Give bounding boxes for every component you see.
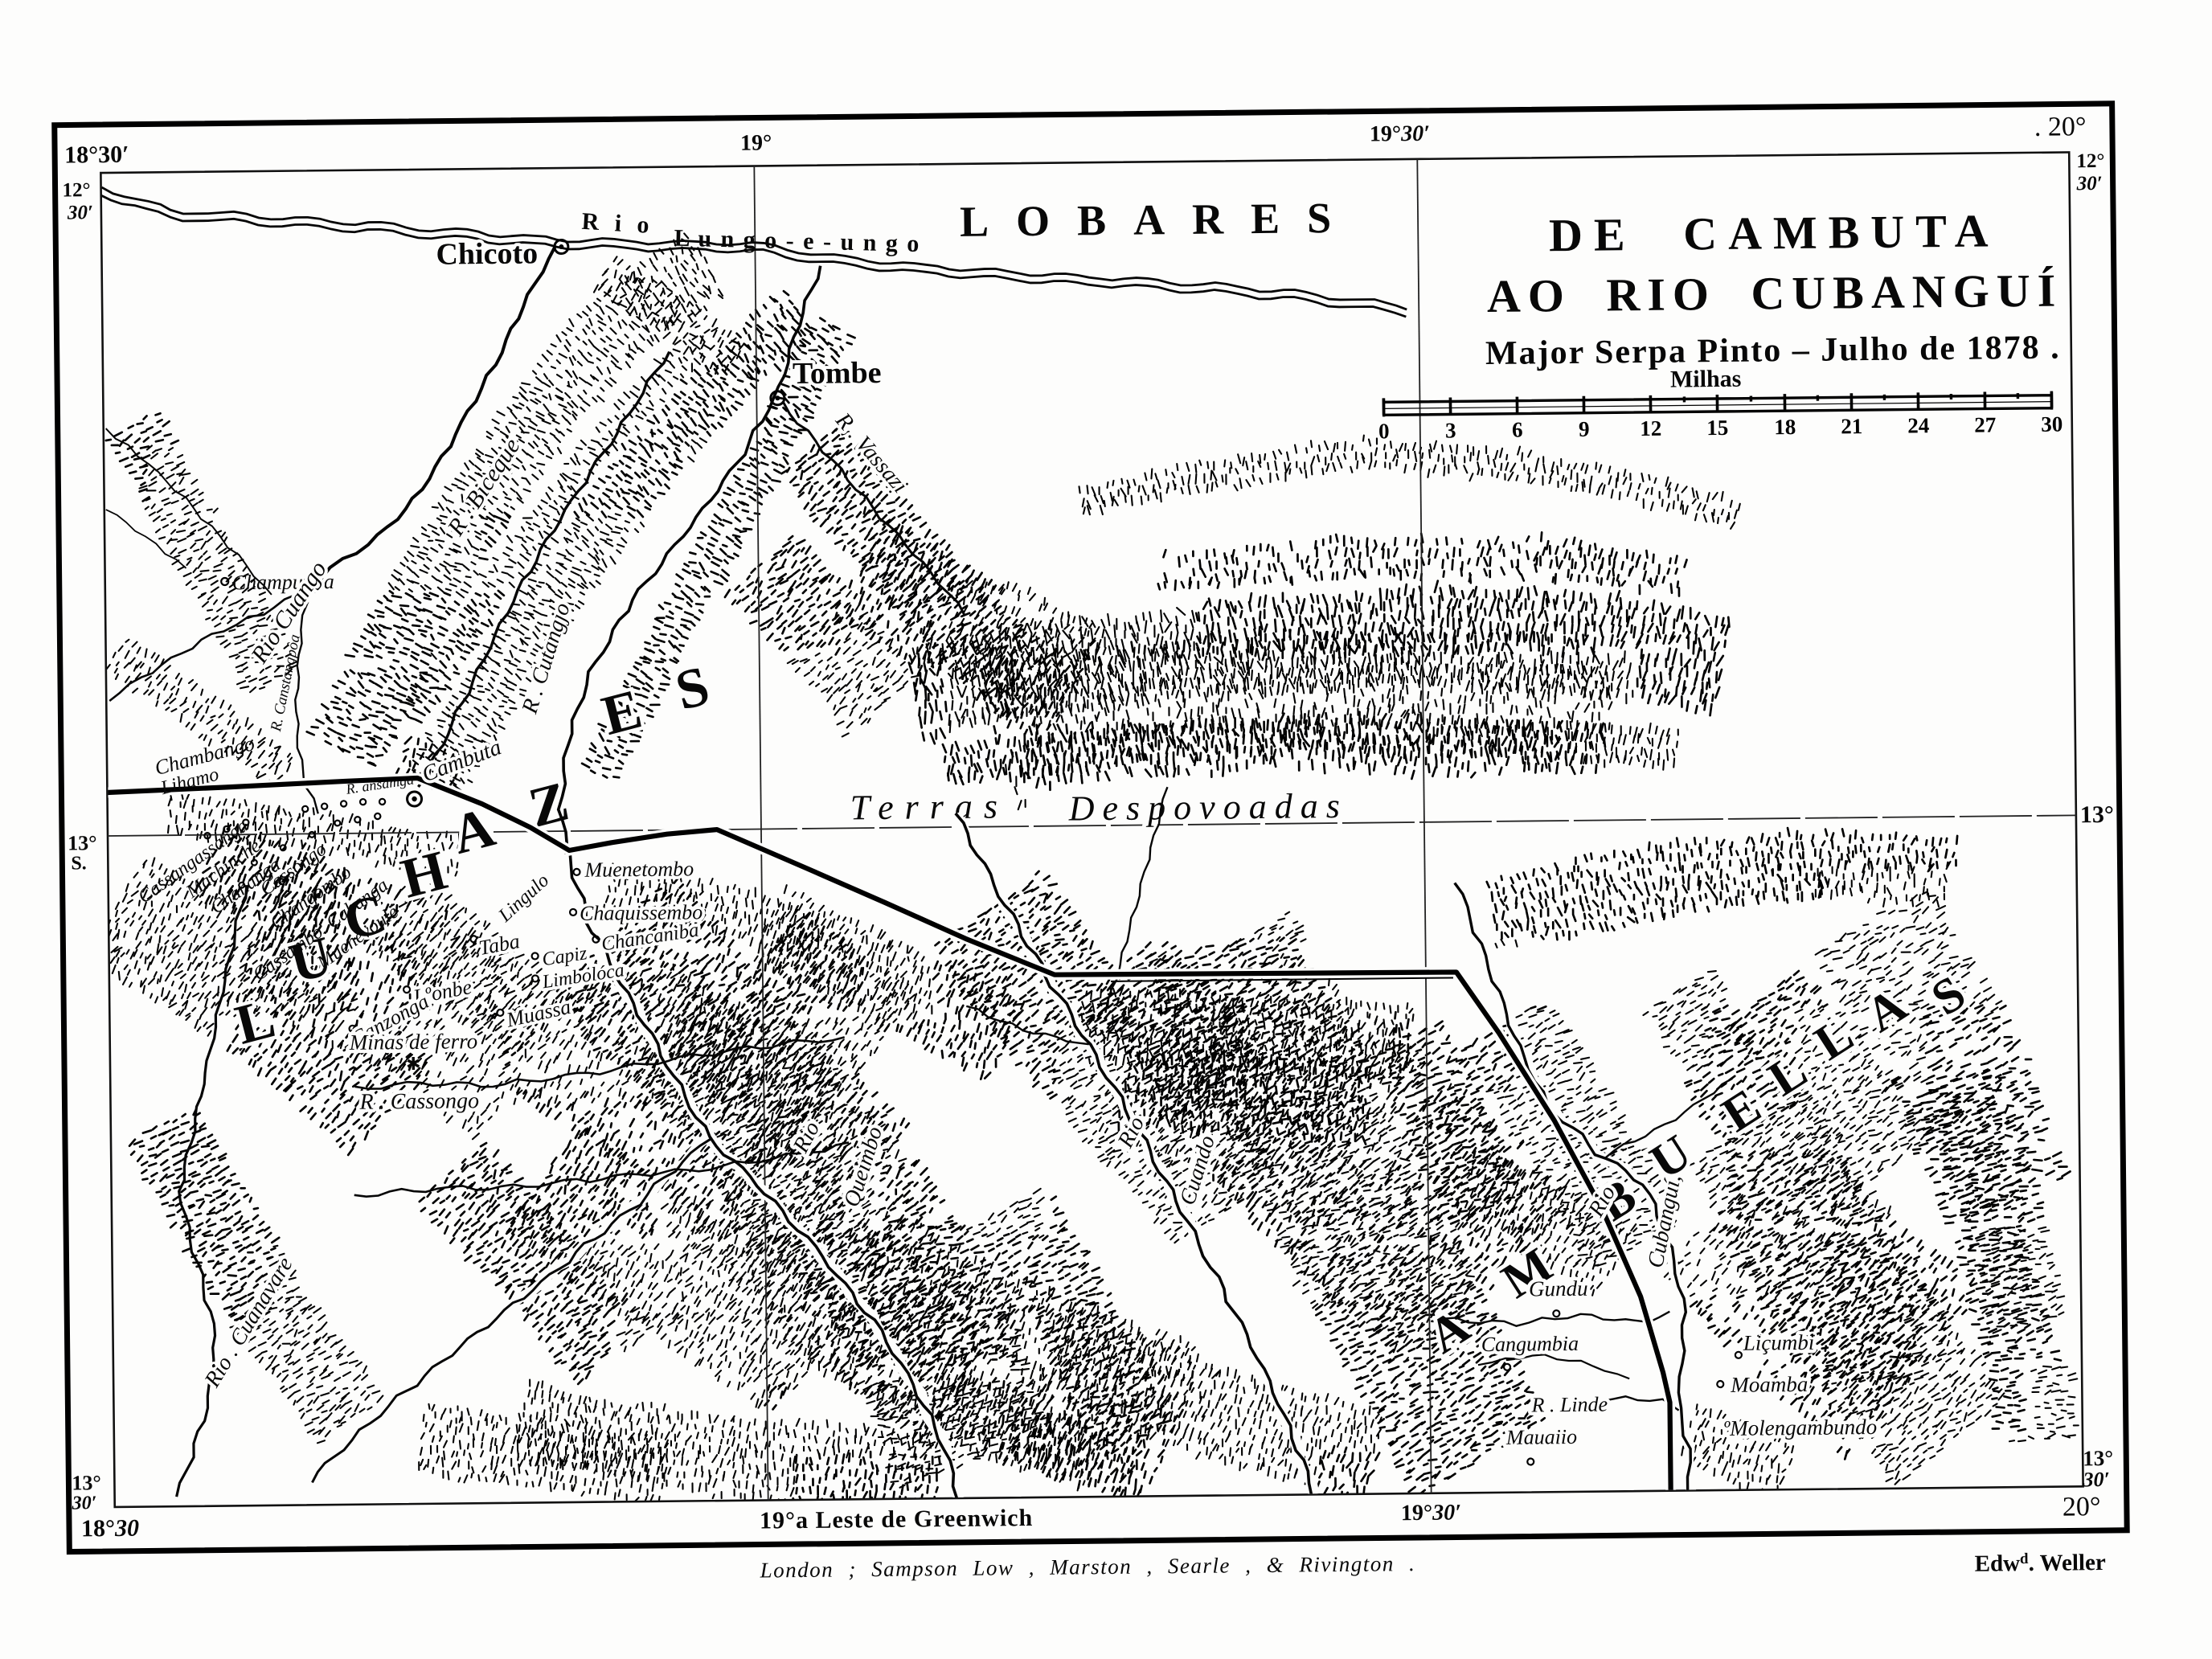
svg-text:Milhas: Milhas: [1670, 366, 1742, 393]
svg-text:R . Linde: R . Linde: [1530, 1393, 1608, 1417]
svg-text:19°30′: 19°30′: [1401, 1500, 1461, 1526]
svg-text:30′: 30′: [67, 202, 93, 223]
svg-text:Major Serpa Pinto – Julho de 1: Major Serpa Pinto – Julho de 1878 .: [1485, 330, 2061, 372]
svg-text:15: 15: [1706, 416, 1728, 440]
svg-text:Liçumbi: Liçumbi: [1743, 1330, 1815, 1355]
svg-text:Minas de ferro: Minas de ferro: [349, 1029, 478, 1055]
svg-text:✱: ✱: [406, 1054, 421, 1074]
svg-text:Cangumbia: Cangumbia: [1481, 1332, 1579, 1356]
svg-text:Gundu: Gundu: [1529, 1276, 1588, 1301]
svg-text:18°30′: 18°30′: [64, 141, 129, 169]
svg-text:12°: 12°: [2076, 150, 2104, 172]
svg-text:27: 27: [1974, 412, 1996, 436]
svg-text:R i o: R i o: [581, 208, 655, 239]
svg-text:. 20°: . 20°: [2034, 112, 2087, 142]
svg-text:18°30: 18°30: [81, 1515, 139, 1542]
svg-text:19°a Leste de Greenwich: 19°a Leste de Greenwich: [760, 1505, 1034, 1534]
svg-text:0: 0: [1378, 419, 1390, 443]
svg-text:13°: 13°: [68, 831, 97, 854]
svg-text:Despovoadas: Despovoadas: [1067, 786, 1348, 829]
svg-text:Edwd. Weller: Edwd. Weller: [1974, 1550, 2106, 1577]
svg-text:18: 18: [1774, 415, 1796, 439]
svg-text:DE CAMBUTA: DE CAMBUTA: [1549, 204, 2000, 261]
svg-text:Tombe: Tombe: [793, 356, 882, 391]
svg-text:Chicoto: Chicoto: [436, 236, 538, 271]
svg-text:R . Cassongo: R . Cassongo: [358, 1088, 479, 1115]
svg-text:24: 24: [1907, 413, 1929, 437]
svg-text:9: 9: [1579, 417, 1590, 441]
svg-text:12: 12: [1640, 416, 1661, 440]
svg-text:20°: 20°: [2062, 1492, 2101, 1522]
svg-text:LOBARES: LOBARES: [960, 194, 1359, 246]
svg-text:30′: 30′: [72, 1493, 97, 1514]
svg-text:21: 21: [1841, 414, 1862, 438]
svg-text:19°: 19°: [740, 130, 772, 155]
svg-text:AO RIO CUBANGUÍ: AO RIO CUBANGUÍ: [1487, 264, 2063, 322]
svg-text:S.: S.: [71, 853, 87, 874]
svg-text:13°: 13°: [2083, 1446, 2113, 1470]
svg-text:Mauaiio: Mauaiio: [1505, 1425, 1577, 1449]
svg-text:6: 6: [1512, 418, 1523, 442]
svg-text:Muenetombo: Muenetombo: [584, 857, 694, 881]
svg-text:19°30′: 19°30′: [1370, 121, 1430, 147]
svg-text:30′: 30′: [2076, 173, 2103, 195]
svg-text:30′: 30′: [2082, 1468, 2110, 1491]
svg-text:3: 3: [1445, 418, 1456, 442]
svg-text:Terras: Terras: [850, 786, 1009, 827]
svg-text:30: 30: [2041, 412, 2062, 436]
svg-text:13°: 13°: [2080, 801, 2114, 828]
svg-text:12°: 12°: [62, 179, 90, 201]
svg-text:13°: 13°: [72, 1471, 101, 1494]
svg-text:Moamba: Moamba: [1730, 1372, 1808, 1397]
svg-text:ºMolengambundo: ºMolengambundo: [1723, 1415, 1878, 1440]
